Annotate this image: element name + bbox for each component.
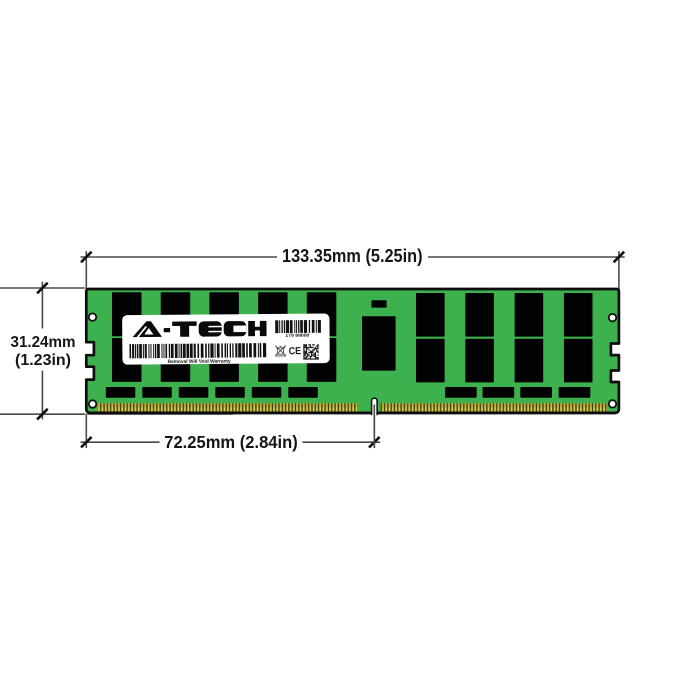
svg-text:179 88000: 179 88000 [285,333,310,338]
svg-text:(1.23in): (1.23in) [15,352,71,369]
svg-text:72.25mm (2.84in): 72.25mm (2.84in) [164,432,298,452]
svg-text:133.35mm (5.25in): 133.35mm (5.25in) [282,246,423,266]
svg-text:31.24mm: 31.24mm [11,334,76,351]
svg-text:CE: CE [289,346,302,357]
svg-text:Removal Will Void Warranty: Removal Will Void Warranty [168,359,231,365]
